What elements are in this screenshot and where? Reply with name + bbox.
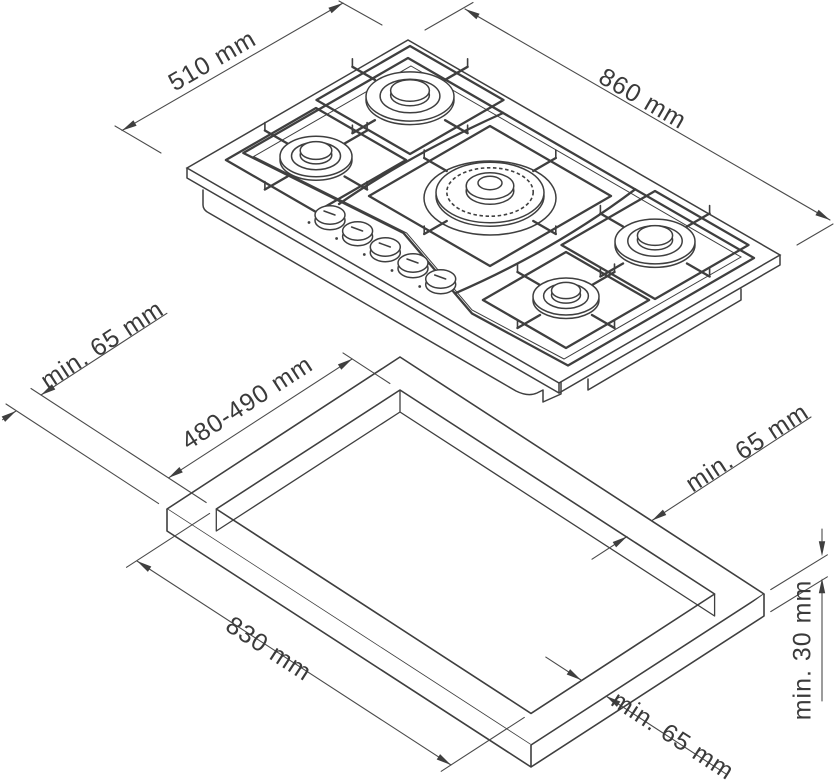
arrowhead — [338, 359, 352, 370]
arrowhead — [122, 120, 137, 130]
arrowhead — [652, 510, 666, 521]
dim-clearance-back-left-label: min. 65 mm — [36, 295, 169, 395]
burner-left-medium — [280, 136, 352, 180]
burner-back-large — [366, 72, 454, 125]
technical-drawing-page: 510 mm 860 mm min. 65 mm 480-490 mm min.… — [0, 0, 835, 780]
burner-right-medium — [615, 219, 695, 267]
technical-drawing-canvas: 510 mm 860 mm min. 65 mm 480-490 mm min.… — [0, 0, 835, 780]
dimension-clearance-front-right: min. 65 mm — [546, 657, 740, 780]
arrowhead — [819, 578, 825, 593]
arrowhead — [328, 3, 343, 13]
arrowhead — [169, 467, 183, 478]
dim-cutout-width-label: 830 mm — [221, 611, 317, 687]
arrowhead — [2, 411, 16, 422]
dim-clearance-back-right-label: min. 65 mm — [681, 398, 814, 498]
worktop-cutout-view — [167, 357, 764, 767]
arrowhead — [819, 541, 825, 556]
arrowhead — [815, 210, 830, 220]
dim-clearance-front-right-label: min. 65 mm — [606, 686, 739, 780]
dimension-worktop-thickness: min. 30 mm — [771, 529, 828, 720]
arrowhead — [465, 9, 480, 19]
dim-worktop-thickness-label: min. 30 mm — [789, 580, 817, 721]
burner-front-small — [533, 278, 599, 319]
arrowhead — [437, 754, 451, 765]
burner-center-wok — [424, 161, 556, 235]
hob-isometric-view — [187, 40, 780, 402]
dim-hob-width-label: 860 mm — [594, 63, 691, 135]
arrowhead — [137, 561, 151, 572]
dim-hob-depth-label: 510 mm — [164, 25, 261, 97]
